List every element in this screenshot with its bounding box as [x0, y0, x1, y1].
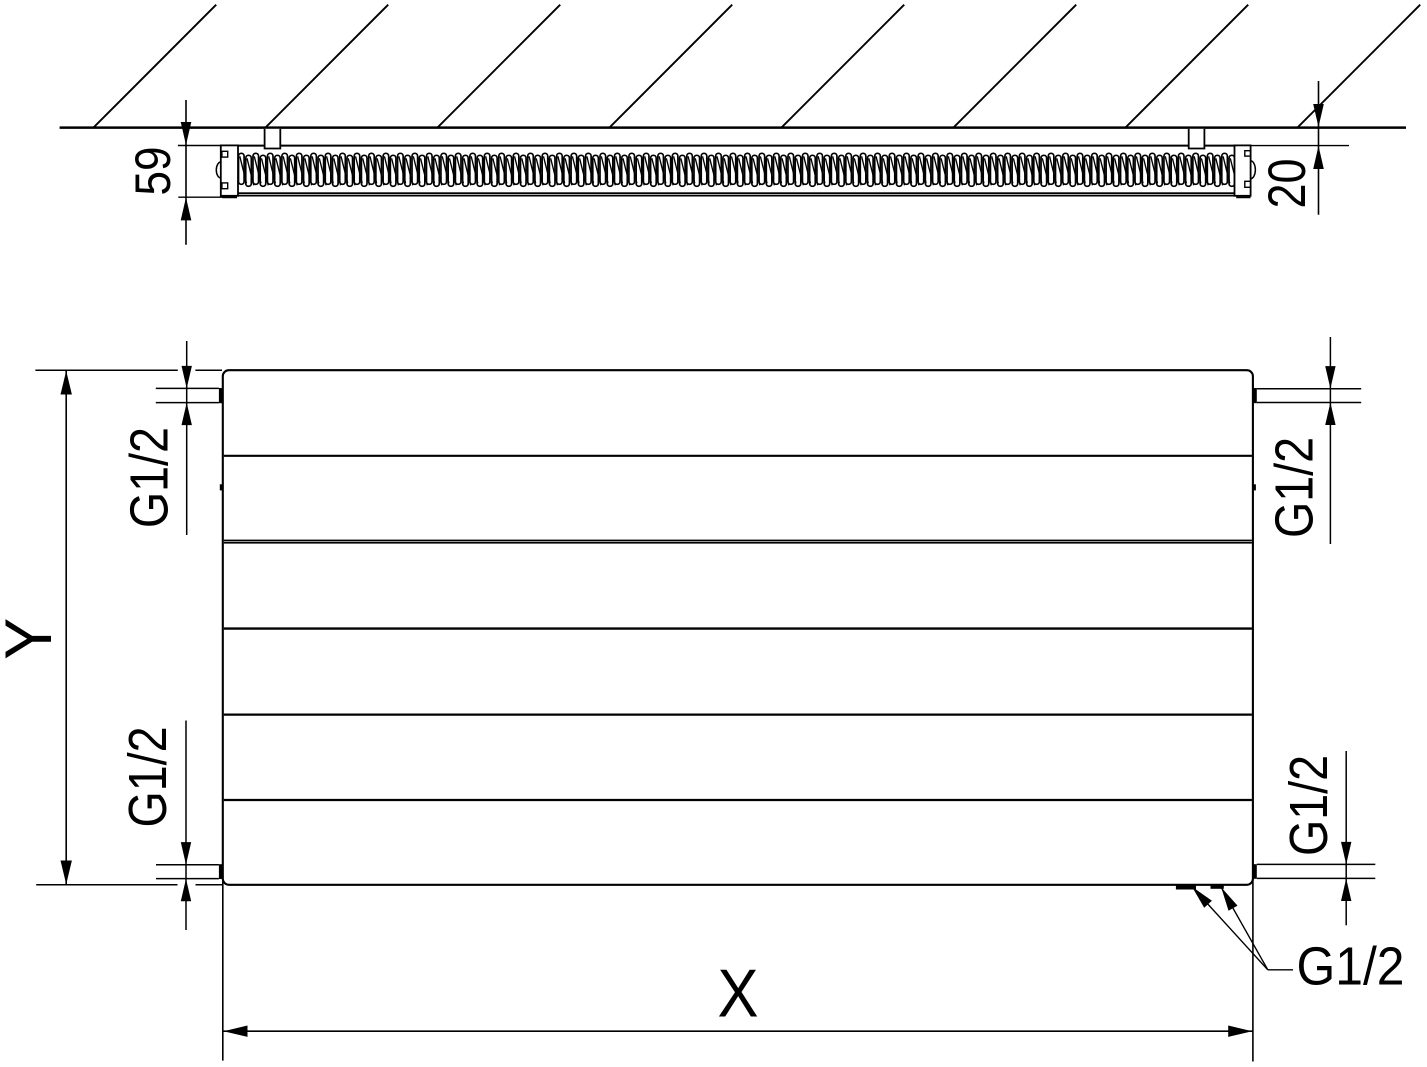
svg-text:G1/2: G1/2	[120, 427, 180, 528]
svg-text:Y: Y	[0, 618, 65, 660]
svg-text:G1/2: G1/2	[118, 727, 178, 828]
svg-text:G1/2: G1/2	[1279, 755, 1339, 856]
svg-text:59: 59	[125, 147, 181, 196]
svg-text:G1/2: G1/2	[1297, 936, 1405, 996]
svg-text:G1/2: G1/2	[1265, 437, 1325, 538]
svg-text:20: 20	[1258, 159, 1317, 209]
svg-text:X: X	[718, 956, 759, 1032]
